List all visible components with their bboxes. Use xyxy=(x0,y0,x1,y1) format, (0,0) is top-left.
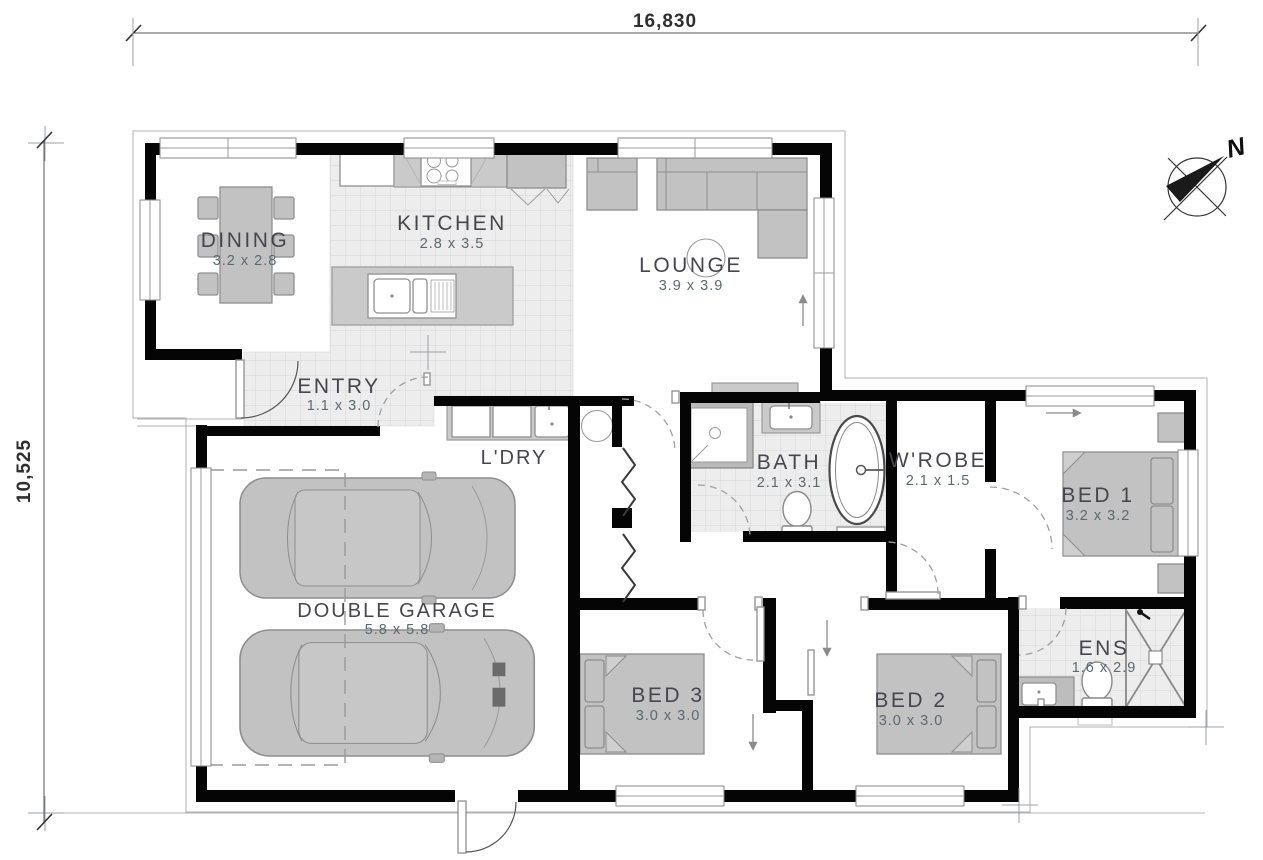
bed2-pillow xyxy=(977,660,996,702)
room-dims-lounge: 3.9 x 3.9 xyxy=(659,278,724,294)
north-label: N xyxy=(1224,132,1249,164)
dimension-width-label: 16,830 xyxy=(633,11,697,32)
window xyxy=(618,138,772,158)
room-label-bath: BATH xyxy=(757,451,821,474)
bed2-pillow xyxy=(977,706,996,748)
slider-track xyxy=(808,650,814,695)
shower xyxy=(685,402,753,468)
room-label-garage: DOUBLE GARAGE xyxy=(297,600,496,622)
hall-door-swing xyxy=(622,399,675,452)
door-jamb xyxy=(1019,596,1026,609)
window xyxy=(616,786,724,806)
room-dims-garage: 5.8 x 5.8 xyxy=(365,622,430,638)
kitchen-island xyxy=(332,267,513,325)
car xyxy=(240,472,515,604)
door-jamb xyxy=(424,373,430,385)
room-label-entry: ENTRY xyxy=(297,375,380,398)
dimension-top: 16,830 xyxy=(126,11,1206,66)
window xyxy=(1026,386,1154,406)
armchair xyxy=(587,158,637,210)
north-needle xyxy=(1166,156,1224,202)
room-label-bed2: BED 2 xyxy=(874,689,947,712)
room-label-dining: DINING xyxy=(201,229,290,252)
floor-plan-svg: 16,830 10,525 N DINING 3.2 x 2.8 KITCHEN… xyxy=(0,0,1263,860)
ens-vanity xyxy=(1012,677,1074,711)
room-label-bed1: BED 1 xyxy=(1061,484,1134,507)
room-dims-dining: 3.2 x 2.8 xyxy=(213,253,278,269)
room-label-bed3: BED 3 xyxy=(631,684,704,707)
bath-vanity xyxy=(762,402,820,433)
room-dims-kitchen: 2.8 x 3.5 xyxy=(420,236,485,252)
hot-water-cylinder xyxy=(582,411,613,442)
tv-unit xyxy=(712,383,798,393)
room-dims-entry: 1.1 x 3.0 xyxy=(307,398,372,414)
window xyxy=(140,200,160,300)
door-jamb xyxy=(672,391,679,403)
room-dims-ens: 1.6 x 2.9 xyxy=(1072,660,1137,676)
room-dims-bed1: 3.2 x 3.2 xyxy=(1066,508,1131,524)
room-label-lounge: LOUNGE xyxy=(639,254,743,277)
laundry-tub xyxy=(535,404,569,437)
bed1-pillow xyxy=(1151,458,1173,504)
door-jamb xyxy=(861,597,868,610)
slider-track xyxy=(757,607,764,661)
rear-door xyxy=(458,801,516,853)
room-label-kitchen: KITCHEN xyxy=(397,212,507,235)
door-jamb xyxy=(698,597,705,610)
bed3-door-swing xyxy=(703,610,753,660)
car xyxy=(240,624,534,763)
window xyxy=(1178,450,1198,556)
fridge xyxy=(507,150,566,188)
bathtub xyxy=(830,416,885,524)
room-label-ldry: L'DRY xyxy=(481,447,548,469)
washing-machine xyxy=(452,406,490,437)
bifold-door xyxy=(622,534,635,602)
window xyxy=(404,138,494,158)
sofa-chaise xyxy=(758,210,807,258)
dimension-height-label: 10,525 xyxy=(14,439,35,503)
bifold-door xyxy=(622,448,635,516)
dryer xyxy=(493,406,531,437)
window xyxy=(814,198,834,348)
bed1-pillow xyxy=(1151,506,1173,552)
room-label-ens: ENS xyxy=(1079,637,1130,660)
room-dims-bath: 2.1 x 3.1 xyxy=(757,475,822,491)
bedside-table xyxy=(1158,413,1186,442)
north-arrow: N xyxy=(1164,132,1249,220)
room-dims-bed2: 3.0 x 3.0 xyxy=(879,713,944,729)
bedside-table xyxy=(1158,564,1186,593)
dimension-left: 10,525 xyxy=(14,132,52,830)
laundry-fixtures xyxy=(447,403,613,442)
bed3-pillow xyxy=(585,706,604,748)
garage-door xyxy=(191,468,211,766)
wardrobe-bed1-door-swing xyxy=(990,487,1052,549)
floor-plan-page: 16,830 10,525 N DINING 3.2 x 2.8 KITCHEN… xyxy=(0,0,1263,860)
window xyxy=(856,786,964,806)
sink-drainer xyxy=(431,280,454,312)
sofa xyxy=(657,158,807,258)
window xyxy=(160,138,296,158)
room-dims-wrobe: 2.1 x 1.5 xyxy=(906,473,971,489)
room-label-wrobe: W'ROBE xyxy=(889,449,987,472)
room-dims-bed3: 3.0 x 3.0 xyxy=(636,708,701,724)
bed3-pillow xyxy=(585,660,604,702)
